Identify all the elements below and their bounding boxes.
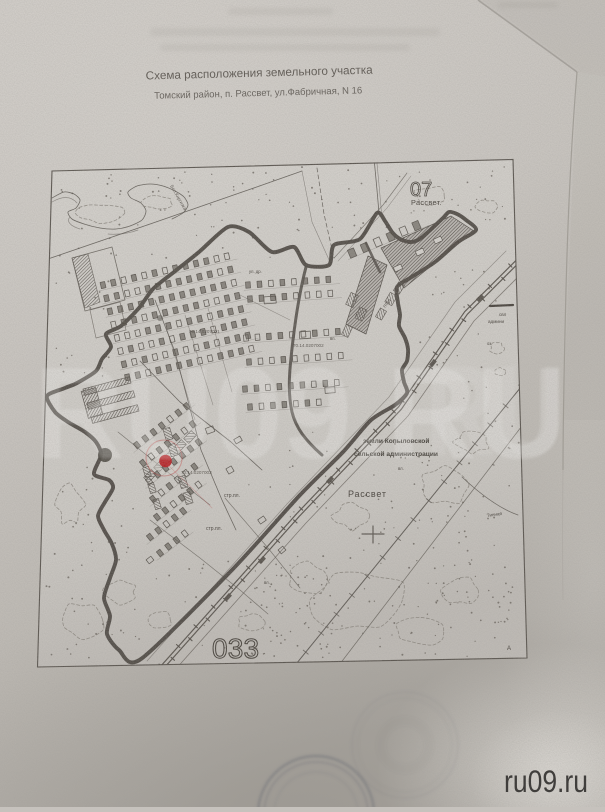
svg-text:ru09.ru: ru09.ru: [504, 763, 588, 799]
